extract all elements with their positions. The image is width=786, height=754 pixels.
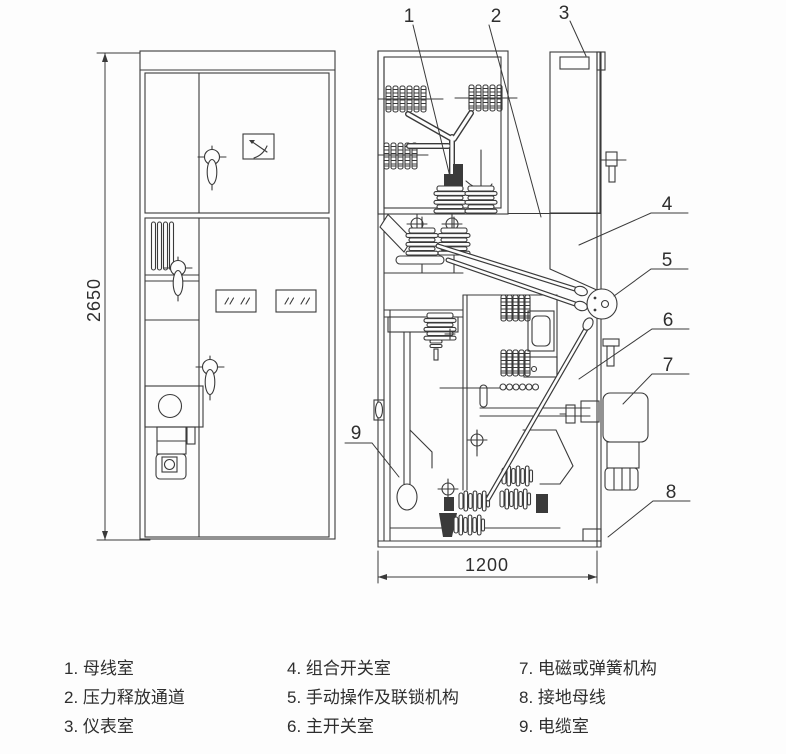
door-handle-icon — [198, 146, 226, 190]
callout-leaders — [345, 21, 690, 537]
bolt-icon — [438, 479, 458, 499]
callout-numbers: 1 2 3 4 5 6 7 8 9 — [351, 3, 677, 503]
legend-item: 5. 手动操作及联锁机构 — [287, 689, 459, 707]
combined-switch-room — [380, 214, 470, 332]
legend-item: 7. 电磁或弹簧机构 — [519, 660, 657, 678]
legend-item: 1. 母线室 — [64, 660, 185, 678]
legend-item: 8. 接地母线 — [519, 689, 657, 707]
cabinet-outline — [140, 51, 335, 539]
inspection-window — [276, 290, 316, 312]
callout-8: 8 — [666, 482, 677, 503]
insulator-stack-icon — [465, 186, 497, 213]
operating-mechanism — [145, 386, 203, 479]
side-section-view — [374, 51, 648, 547]
cable-insulator-icon — [459, 491, 490, 511]
legend-column-3: 7. 电磁或弹簧机构 8. 接地母线 9. 电缆室 — [519, 660, 657, 747]
nameplate — [560, 57, 589, 69]
instrument-room — [508, 52, 626, 291]
vent-louvers-icon — [152, 222, 174, 270]
callout-7: 7 — [663, 355, 674, 376]
legend-item: 3. 仪表室 — [64, 718, 185, 736]
door-handle-icon — [164, 257, 192, 301]
cable-insulator-icon — [454, 515, 485, 535]
insulator-stack-icon — [434, 186, 466, 213]
coil-stack-icon — [501, 295, 530, 376]
inspection-window — [216, 290, 256, 312]
switchgear-drawing-page: 2650 — [0, 0, 786, 754]
callout-6: 6 — [663, 310, 674, 331]
legend-item: 2. 压力释放通道 — [64, 689, 185, 707]
legend-column-1: 1. 母线室 2. 压力释放通道 3. 仪表室 — [64, 660, 185, 747]
technical-drawing: 2650 — [0, 0, 786, 622]
cable-terminal — [397, 484, 417, 510]
bushing-stack-icon — [406, 228, 438, 255]
door-handle-icon — [606, 152, 617, 166]
upper-door — [145, 73, 329, 213]
legend-item: 6. 主开关室 — [287, 718, 459, 736]
legend-column-2: 4. 组合开关室 5. 手动操作及联锁机构 6. 主开关室 — [287, 660, 459, 747]
callout-1: 1 — [404, 6, 415, 27]
height-dimension — [97, 53, 150, 540]
earthing-busbar — [583, 529, 601, 541]
panel-meter-icon — [243, 134, 274, 159]
callout-4: 4 — [662, 194, 673, 215]
callout-5: 5 — [662, 250, 673, 271]
callout-2: 2 — [491, 6, 502, 27]
legend-item: 9. 电缆室 — [519, 718, 657, 736]
cable-room — [374, 310, 573, 541]
height-dimension-label: 2650 — [84, 278, 104, 322]
width-dimension-label: 1200 — [465, 555, 509, 575]
cable-insulator-icon — [500, 489, 531, 509]
legend-item: 4. 组合开关室 — [287, 660, 459, 678]
door-handle-icon — [196, 356, 224, 400]
callout-3: 3 — [559, 3, 570, 24]
busbar-room — [378, 51, 517, 214]
callout-9: 9 — [351, 423, 362, 444]
front-view — [140, 51, 335, 539]
contact-arm-insulator — [424, 313, 456, 360]
main-switch-room — [424, 295, 557, 490]
spring-mechanism — [603, 339, 648, 490]
contact-block — [444, 164, 463, 186]
